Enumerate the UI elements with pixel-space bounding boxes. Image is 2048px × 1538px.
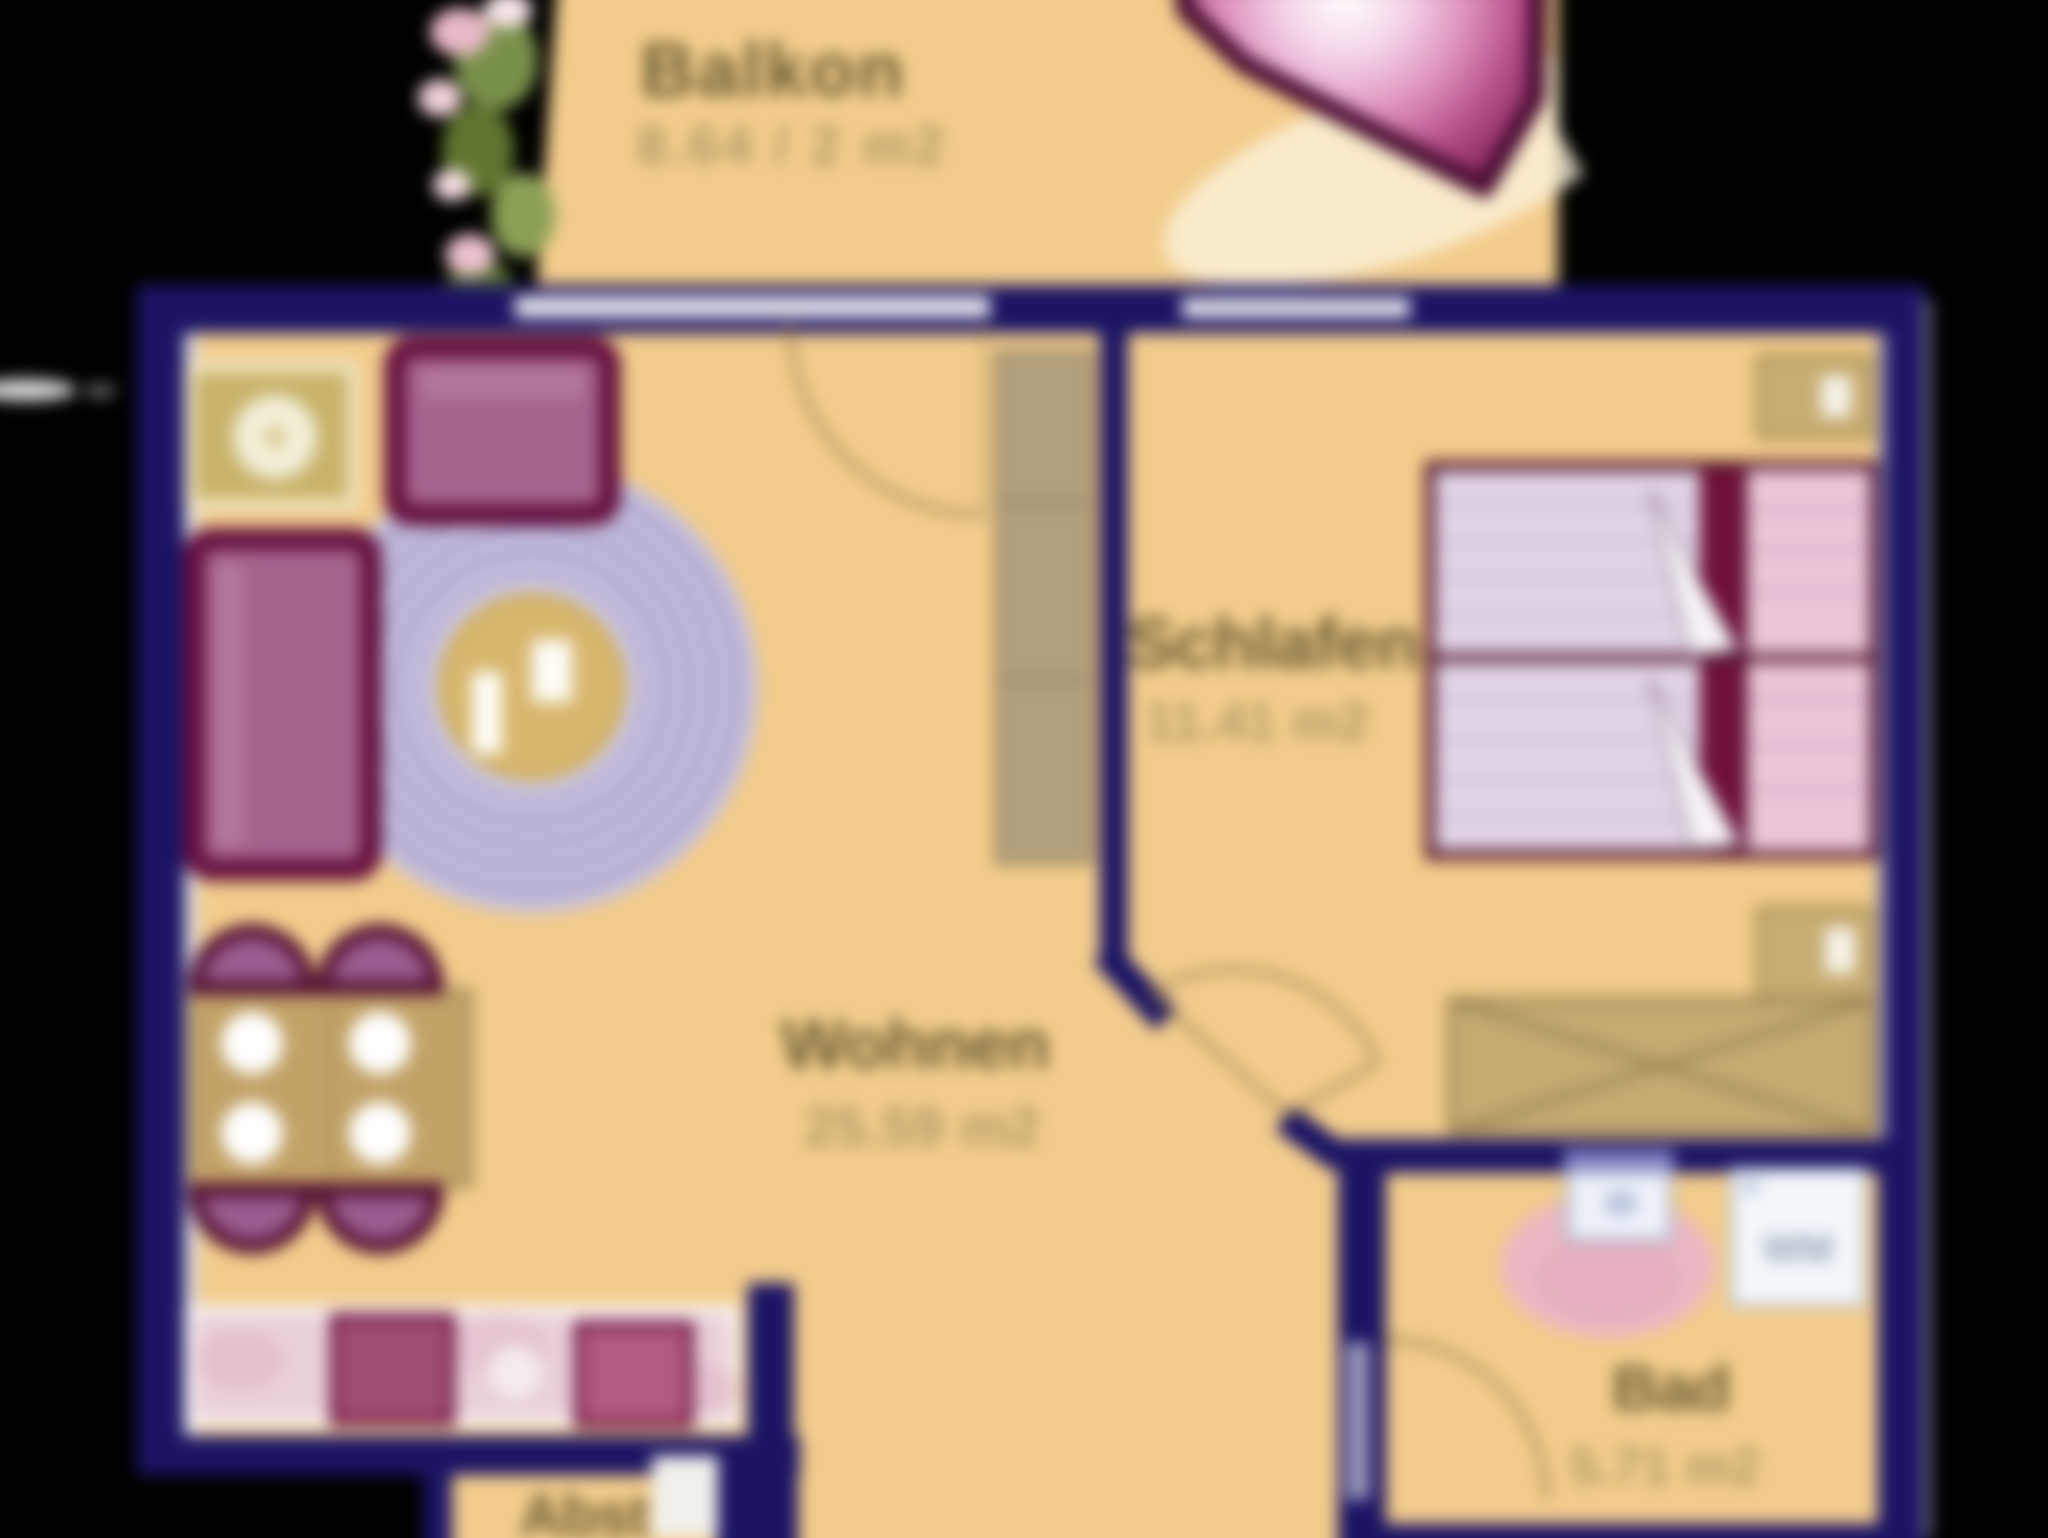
svg-text:5.71 m2: 5.71 m2 (1570, 1438, 1761, 1496)
svg-text:Schlafen: Schlafen (1127, 604, 1419, 684)
svg-text:25.59 m2: 25.59 m2 (804, 1095, 1041, 1158)
svg-text:8.64 / 2 m2: 8.64 / 2 m2 (636, 114, 947, 176)
svg-text:Abst: Abst (519, 1482, 649, 1538)
svg-text:11.41 m2: 11.41 m2 (1144, 692, 1369, 752)
svg-text:Balkon: Balkon (640, 28, 905, 113)
svg-text:Wohnen: Wohnen (781, 1005, 1050, 1083)
svg-text:Bad: Bad (1612, 1352, 1730, 1424)
svg-text:WM: WM (1762, 1227, 1833, 1271)
